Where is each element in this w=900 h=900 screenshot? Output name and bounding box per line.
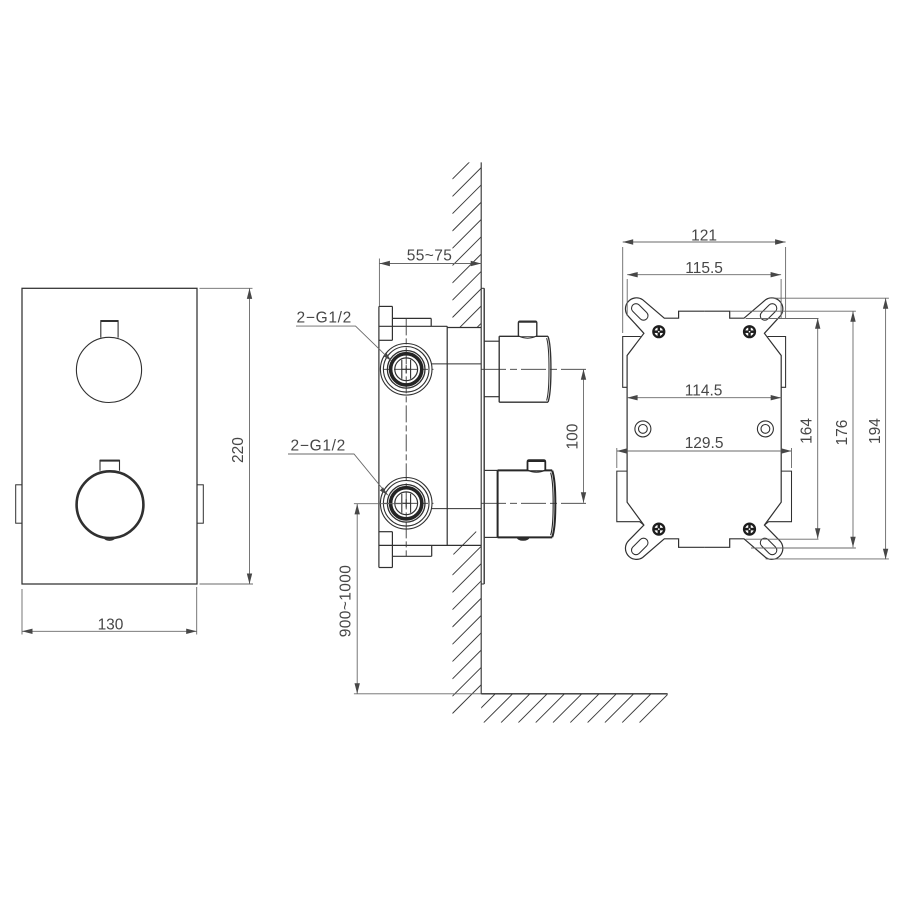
- svg-text:176: 176: [834, 420, 851, 446]
- svg-text:100: 100: [565, 423, 582, 449]
- svg-text:55~75: 55~75: [407, 248, 453, 265]
- svg-text:900~1000: 900~1000: [337, 565, 354, 638]
- svg-text:220: 220: [230, 437, 247, 463]
- svg-text:194: 194: [867, 418, 884, 444]
- svg-text:129.5: 129.5: [685, 435, 724, 452]
- svg-text:164: 164: [798, 418, 815, 444]
- svg-text:114.5: 114.5: [685, 382, 723, 399]
- svg-text:2−G1/2: 2−G1/2: [291, 437, 346, 454]
- svg-text:130: 130: [98, 616, 124, 633]
- svg-text:115.5: 115.5: [685, 260, 723, 277]
- svg-text:2−G1/2: 2−G1/2: [297, 310, 352, 327]
- svg-text:121: 121: [691, 227, 717, 244]
